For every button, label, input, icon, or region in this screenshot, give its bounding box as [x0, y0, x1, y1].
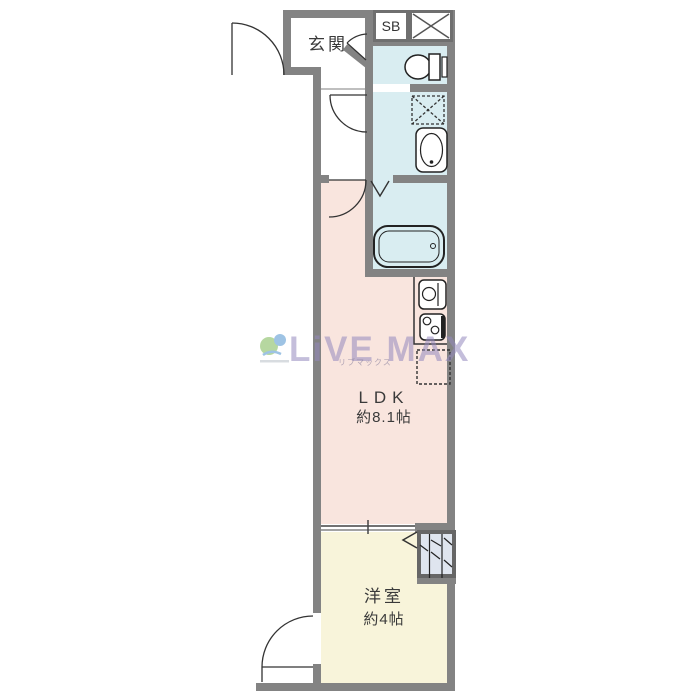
ldk-door-arc [329, 180, 366, 217]
bathtub-icon [374, 226, 444, 267]
fixtures-overlay [0, 0, 700, 700]
refrigerator-space-icon [417, 350, 450, 384]
bath-folding-door-icon [371, 181, 389, 196]
hallway-door-arc [330, 95, 367, 132]
floor-plan: SB [0, 0, 700, 700]
toilet-icon [405, 54, 447, 80]
washbasin-icon [416, 128, 447, 172]
kitchen-sink-icon [419, 280, 446, 309]
western-room-door-arc [262, 616, 313, 682]
stove-icon [420, 314, 445, 340]
closet-hangers-icon [420, 534, 452, 578]
closet-door-mark [403, 532, 417, 548]
pipe-space-cross-icon [413, 14, 449, 38]
wall-diagonal [345, 47, 369, 66]
sliding-door [321, 520, 415, 534]
washing-machine-space-icon [412, 96, 444, 124]
entrance-door-arc [232, 23, 284, 75]
